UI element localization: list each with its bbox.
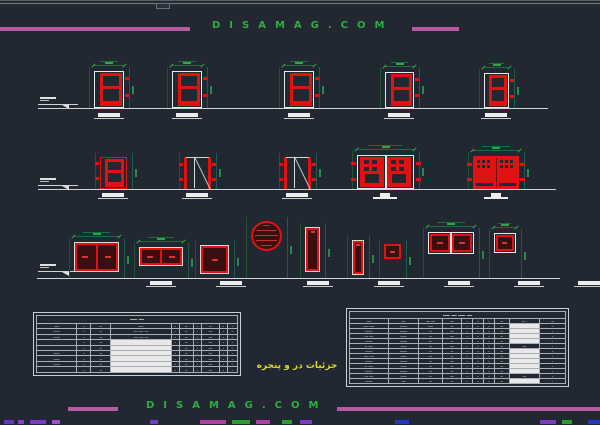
hinge-mark bbox=[312, 163, 316, 166]
dim-extension-line bbox=[524, 152, 525, 189]
table-cell: ــــــ bbox=[111, 367, 171, 373]
dim-extension-line bbox=[468, 152, 469, 189]
table-cell: ــ bbox=[494, 379, 509, 384]
glazing-light bbox=[500, 160, 503, 163]
door-single-elevation bbox=[484, 73, 509, 108]
dim-extension-line bbox=[134, 243, 135, 278]
level-marker-text bbox=[40, 267, 49, 268]
cutoff-mark bbox=[540, 420, 556, 424]
threshold-base bbox=[481, 118, 511, 119]
bottom-banner-bar-left bbox=[68, 407, 118, 411]
dim-extension-line bbox=[179, 153, 180, 189]
hinge-mark bbox=[315, 77, 319, 80]
threshold-base bbox=[172, 118, 202, 119]
dim-extension-line bbox=[479, 228, 480, 278]
glazing-light bbox=[510, 160, 513, 163]
threshold-base bbox=[146, 286, 176, 287]
hinge-mark bbox=[351, 178, 356, 181]
door-double-elevation bbox=[357, 155, 414, 189]
glazing-light bbox=[391, 167, 396, 171]
dim-text bbox=[501, 224, 509, 226]
table-cell: ـ bbox=[77, 367, 91, 373]
door-panel bbox=[392, 174, 406, 183]
door-panel bbox=[293, 89, 309, 101]
threshold-mark bbox=[388, 113, 410, 117]
mullion bbox=[385, 156, 387, 188]
hinge-mark bbox=[510, 95, 514, 98]
glass-mark bbox=[459, 242, 465, 244]
cutoff-mark bbox=[256, 420, 270, 424]
dim-tick bbox=[181, 239, 185, 243]
door-panel bbox=[181, 89, 197, 101]
threshold-base bbox=[384, 118, 414, 119]
door-panel bbox=[492, 78, 504, 87]
dim-tick bbox=[517, 148, 521, 152]
glazing-light bbox=[372, 160, 377, 164]
hinge-mark bbox=[279, 178, 283, 181]
dim-line bbox=[494, 227, 516, 228]
glazing-light bbox=[477, 165, 480, 168]
dim-text bbox=[493, 64, 501, 66]
dim-text-vertical bbox=[319, 169, 321, 177]
dim-extension-line bbox=[319, 67, 320, 108]
dim-tick bbox=[117, 234, 121, 238]
level-marker-text bbox=[40, 100, 49, 101]
glass-mark bbox=[356, 244, 360, 246]
glazing-light bbox=[487, 165, 490, 168]
cutoff-mark bbox=[282, 420, 292, 424]
table-title: ـــ ــــ ـــ ــــ bbox=[350, 312, 566, 319]
ground-line bbox=[38, 189, 556, 190]
dim-extension-line bbox=[325, 223, 326, 278]
dim-extension-line bbox=[479, 69, 480, 108]
door-panel bbox=[108, 173, 121, 182]
glazing-light bbox=[505, 165, 508, 168]
threshold-mark bbox=[448, 281, 470, 285]
dim-tick bbox=[312, 63, 316, 67]
dim-text-vertical bbox=[322, 86, 324, 94]
glazing-light bbox=[477, 160, 480, 163]
door-panel bbox=[103, 76, 119, 86]
table-cell: ــ bbox=[442, 379, 461, 384]
glass-mark bbox=[311, 231, 315, 233]
window-elevation bbox=[74, 242, 119, 272]
dim-extension-line bbox=[287, 217, 288, 278]
glass-mark bbox=[105, 256, 111, 258]
dim-text bbox=[295, 62, 303, 64]
door-jamb bbox=[284, 157, 287, 189]
cutoff-mark bbox=[150, 420, 158, 424]
dim-text-vertical bbox=[372, 255, 374, 263]
hinge-mark bbox=[315, 94, 319, 97]
glass-mark bbox=[212, 259, 218, 261]
bottom-banner-bar-right bbox=[337, 407, 600, 411]
dim-extension-line bbox=[207, 67, 208, 108]
dim-text-vertical bbox=[422, 86, 424, 94]
threshold-base bbox=[374, 286, 404, 287]
dim-text-vertical bbox=[219, 169, 221, 177]
glazing-light bbox=[482, 160, 485, 163]
door-open-elevation bbox=[284, 157, 311, 189]
mullion bbox=[96, 245, 98, 269]
level-marker-line bbox=[38, 185, 78, 186]
glazing-light bbox=[399, 160, 404, 164]
hinge-mark bbox=[520, 163, 525, 166]
threshold-base bbox=[284, 118, 314, 119]
glazing-light bbox=[487, 160, 490, 163]
door-panel bbox=[103, 89, 119, 101]
hinge-mark bbox=[351, 162, 356, 165]
dim-text bbox=[447, 223, 455, 225]
threshold-base bbox=[574, 286, 600, 287]
cutoff-mark bbox=[395, 420, 409, 424]
threshold-base bbox=[98, 198, 128, 199]
cutoff-mark bbox=[200, 420, 226, 424]
hinge-mark bbox=[212, 163, 216, 166]
table-cell: ـ bbox=[483, 379, 494, 384]
watermark-bottom: DISAMAG.COM bbox=[146, 400, 327, 411]
dim-extension-line bbox=[234, 241, 235, 278]
threshold-mark bbox=[307, 281, 329, 285]
table-cell: ـ bbox=[540, 379, 566, 384]
window-elevation bbox=[139, 247, 183, 266]
level-marker-arrow bbox=[62, 272, 69, 276]
hinge-mark bbox=[416, 162, 421, 165]
table-cell: ـــ bbox=[388, 379, 418, 384]
dim-text bbox=[93, 233, 101, 235]
dim-line bbox=[428, 226, 474, 227]
dim-extension-line bbox=[406, 240, 407, 278]
door-single-elevation bbox=[94, 71, 124, 108]
hinge-mark bbox=[203, 94, 207, 97]
door-panel bbox=[394, 77, 409, 87]
dim-line bbox=[473, 150, 519, 151]
dim-line bbox=[94, 65, 124, 66]
mullion bbox=[160, 250, 162, 263]
cutoff-mark bbox=[18, 420, 24, 424]
dim-extension-line bbox=[279, 67, 280, 108]
table-cell: ـ bbox=[462, 379, 473, 384]
kick-panel bbox=[499, 183, 516, 186]
hinge-mark bbox=[179, 163, 183, 166]
dim-text bbox=[157, 238, 165, 240]
table-cell: ـ bbox=[227, 367, 237, 373]
dim-extension-line bbox=[514, 69, 515, 108]
threshold-mark bbox=[98, 113, 120, 117]
dim-text bbox=[105, 62, 113, 64]
hinge-mark bbox=[95, 177, 99, 180]
door-schedule-table-left: ـــ ــــــــــــــــــــــــــــــــــ ـ… bbox=[36, 315, 238, 373]
glass-mark bbox=[437, 242, 443, 244]
dim-line bbox=[74, 236, 119, 237]
window-elevation bbox=[384, 244, 401, 259]
threshold-base bbox=[444, 286, 474, 287]
dim-line bbox=[139, 241, 183, 242]
dim-text-vertical bbox=[422, 168, 424, 176]
hinge-mark bbox=[520, 178, 525, 181]
dim-tick bbox=[412, 147, 416, 151]
hinge-mark bbox=[416, 178, 421, 181]
dim-extension-line bbox=[129, 67, 130, 108]
table-cell: ــــــ bbox=[350, 379, 389, 384]
glass-mark bbox=[82, 256, 88, 258]
dim-extension-line bbox=[419, 151, 420, 189]
dim-extension-line bbox=[69, 238, 70, 278]
dim-tick bbox=[412, 64, 416, 68]
door-head-line bbox=[286, 157, 309, 158]
hinge-mark bbox=[179, 178, 183, 181]
window-circular-elevation bbox=[251, 221, 282, 251]
window-elevation bbox=[200, 245, 229, 274]
dim-extension-line bbox=[347, 236, 348, 278]
door-panel bbox=[293, 76, 309, 86]
kick-panel bbox=[476, 183, 493, 186]
door-single-elevation bbox=[284, 71, 314, 108]
level-marker-arrow bbox=[62, 105, 69, 109]
table-cell: ــ bbox=[419, 379, 443, 384]
dim-text-vertical bbox=[328, 249, 330, 257]
level-marker-text bbox=[40, 97, 56, 99]
window-slit-elevation bbox=[352, 240, 364, 275]
threshold-mark bbox=[378, 281, 400, 285]
dim-text bbox=[492, 147, 500, 149]
dim-extension-line bbox=[369, 236, 370, 278]
dim-tick bbox=[472, 224, 476, 228]
table-cell bbox=[37, 367, 77, 373]
hinge-mark bbox=[415, 78, 419, 81]
dim-text-vertical bbox=[290, 246, 292, 254]
dim-text-vertical bbox=[237, 258, 239, 266]
dim-text-vertical bbox=[517, 87, 519, 95]
glass-mark bbox=[147, 256, 153, 258]
threshold-mark bbox=[485, 113, 507, 117]
threshold-base bbox=[216, 286, 246, 287]
door-single-elevation bbox=[385, 72, 414, 108]
dim-extension-line bbox=[380, 68, 381, 108]
door-panel bbox=[108, 162, 121, 170]
glass-mark bbox=[390, 251, 395, 253]
level-marker-line bbox=[38, 271, 78, 272]
glass-mark bbox=[502, 242, 507, 244]
level-marker-text bbox=[40, 178, 56, 180]
dim-text bbox=[183, 62, 191, 64]
threshold-base bbox=[94, 118, 124, 119]
level-marker-line bbox=[38, 104, 78, 105]
dim-line bbox=[357, 149, 414, 150]
dim-extension-line bbox=[246, 217, 247, 278]
table-cell: ـ bbox=[473, 379, 484, 384]
cutoff-mark bbox=[30, 420, 46, 424]
hinge-mark bbox=[279, 163, 283, 166]
dim-extension-line bbox=[419, 68, 420, 108]
door-panel bbox=[394, 90, 409, 101]
threshold-mark bbox=[288, 113, 310, 117]
hinge-mark bbox=[212, 178, 216, 181]
dim-text bbox=[382, 146, 390, 148]
ground-line bbox=[37, 278, 560, 279]
door-panel bbox=[181, 76, 197, 86]
glazing-light bbox=[505, 160, 508, 163]
dim-tick bbox=[514, 225, 518, 229]
level-marker-text bbox=[40, 264, 56, 266]
threshold-base bbox=[182, 198, 212, 199]
dim-extension-line bbox=[132, 153, 133, 189]
level-marker-arrow bbox=[62, 186, 69, 190]
dim-extension-line bbox=[379, 240, 380, 278]
cutoff-mark bbox=[4, 420, 14, 424]
glazing-light bbox=[482, 165, 485, 168]
dim-extension-line bbox=[316, 153, 317, 189]
threshold-base bbox=[484, 197, 508, 199]
threshold-mark bbox=[176, 113, 198, 117]
louver-lines bbox=[255, 225, 278, 247]
dim-line bbox=[172, 65, 202, 66]
dim-text-vertical bbox=[524, 252, 526, 260]
glazing-light bbox=[500, 165, 503, 168]
table-cell: ــ bbox=[91, 367, 111, 373]
dim-text-vertical bbox=[132, 86, 134, 94]
door-jamb bbox=[184, 157, 187, 189]
dim-extension-line bbox=[124, 238, 125, 278]
window-frame bbox=[306, 228, 319, 271]
glazing-light bbox=[372, 167, 377, 171]
dim-line bbox=[484, 67, 509, 68]
window-elevation bbox=[428, 232, 474, 254]
dim-text-vertical bbox=[527, 169, 529, 177]
door-schedule-table-right: ـــ ــــ ـــ ــــــــــــــ ــــــــــــ… bbox=[349, 311, 566, 384]
dim-text bbox=[396, 63, 404, 65]
dim-text-vertical bbox=[409, 257, 411, 265]
dim-extension-line bbox=[89, 67, 90, 108]
cad-viewport: DISAMAG.COM ـــ ــــــــــــــــــــــــ… bbox=[0, 0, 600, 425]
threshold-mark bbox=[286, 193, 308, 197]
hinge-mark bbox=[415, 94, 419, 97]
threshold-base bbox=[303, 286, 333, 287]
hinge-mark bbox=[95, 162, 99, 165]
threshold-mark bbox=[102, 193, 124, 197]
dim-extension-line bbox=[195, 241, 196, 278]
table-title: ـــ ــــ bbox=[37, 316, 238, 324]
window-slit-elevation bbox=[305, 227, 320, 272]
hinge-mark bbox=[125, 94, 129, 97]
dim-text-vertical bbox=[210, 86, 212, 94]
dim-line bbox=[284, 65, 314, 66]
door-single-elevation bbox=[100, 157, 127, 189]
dim-line bbox=[385, 66, 414, 67]
threshold-mark bbox=[578, 281, 600, 285]
table-cell: ـــــ bbox=[509, 379, 539, 384]
threshold-mark bbox=[220, 281, 242, 285]
cutoff-mark bbox=[300, 420, 312, 424]
hinge-mark bbox=[467, 163, 472, 166]
dim-extension-line bbox=[423, 228, 424, 278]
dim-text-vertical bbox=[191, 259, 193, 267]
dim-extension-line bbox=[95, 153, 96, 189]
door-leaf-edge bbox=[294, 158, 295, 188]
window-elevation bbox=[494, 233, 516, 253]
table-cell: ـــ bbox=[201, 367, 219, 373]
threshold-mark bbox=[150, 281, 172, 285]
dim-text-vertical bbox=[135, 169, 137, 177]
cutoff-mark bbox=[232, 420, 250, 424]
glazing-light bbox=[510, 165, 513, 168]
threshold-base bbox=[514, 286, 544, 287]
cutoff-mark bbox=[588, 420, 600, 424]
cutoff-mark bbox=[562, 420, 572, 424]
threshold-mark bbox=[518, 281, 540, 285]
dim-text-vertical bbox=[482, 251, 484, 259]
door-leaf-edge bbox=[194, 158, 195, 188]
door-panel bbox=[492, 90, 504, 101]
dim-tick bbox=[200, 63, 204, 67]
dim-extension-line bbox=[188, 243, 189, 278]
dim-extension-line bbox=[489, 229, 490, 278]
sheet-label: جزئیات در و پنجره bbox=[238, 361, 356, 371]
dim-extension-line bbox=[216, 153, 217, 189]
dim-extension-line bbox=[521, 229, 522, 278]
glazing-light bbox=[364, 160, 369, 164]
glazing-light bbox=[364, 167, 369, 171]
dim-extension-line bbox=[300, 223, 301, 278]
dim-tick bbox=[507, 65, 511, 69]
ground-line bbox=[38, 108, 548, 109]
hinge-mark bbox=[203, 77, 207, 80]
dim-extension-line bbox=[167, 67, 168, 108]
cutoff-mark bbox=[52, 420, 60, 424]
threshold-base bbox=[282, 198, 312, 199]
hinge-mark bbox=[125, 77, 129, 80]
threshold-base bbox=[373, 197, 397, 199]
door-single-elevation bbox=[172, 71, 202, 108]
hinge-mark bbox=[312, 178, 316, 181]
hinge-mark bbox=[510, 79, 514, 82]
door-open-elevation bbox=[184, 157, 211, 189]
table-cell: ــ bbox=[179, 367, 193, 373]
dim-extension-line bbox=[352, 151, 353, 189]
hinge-mark bbox=[467, 178, 472, 181]
level-marker-text bbox=[40, 181, 49, 182]
table-cell: ـ bbox=[193, 367, 201, 373]
mullion bbox=[496, 158, 497, 187]
dim-tick bbox=[122, 63, 126, 67]
table-cell: ـ bbox=[171, 367, 179, 373]
door-panel bbox=[365, 174, 379, 183]
glass-mark bbox=[169, 256, 175, 258]
mullion bbox=[450, 233, 452, 253]
table-cell: ـ bbox=[219, 367, 227, 373]
dim-text-vertical bbox=[127, 256, 129, 264]
glazing-light bbox=[399, 167, 404, 171]
threshold-mark bbox=[186, 193, 208, 197]
door-head-line bbox=[186, 157, 209, 158]
door-double-elevation bbox=[473, 156, 519, 189]
dim-extension-line bbox=[279, 153, 280, 189]
glazing-light bbox=[391, 160, 396, 164]
